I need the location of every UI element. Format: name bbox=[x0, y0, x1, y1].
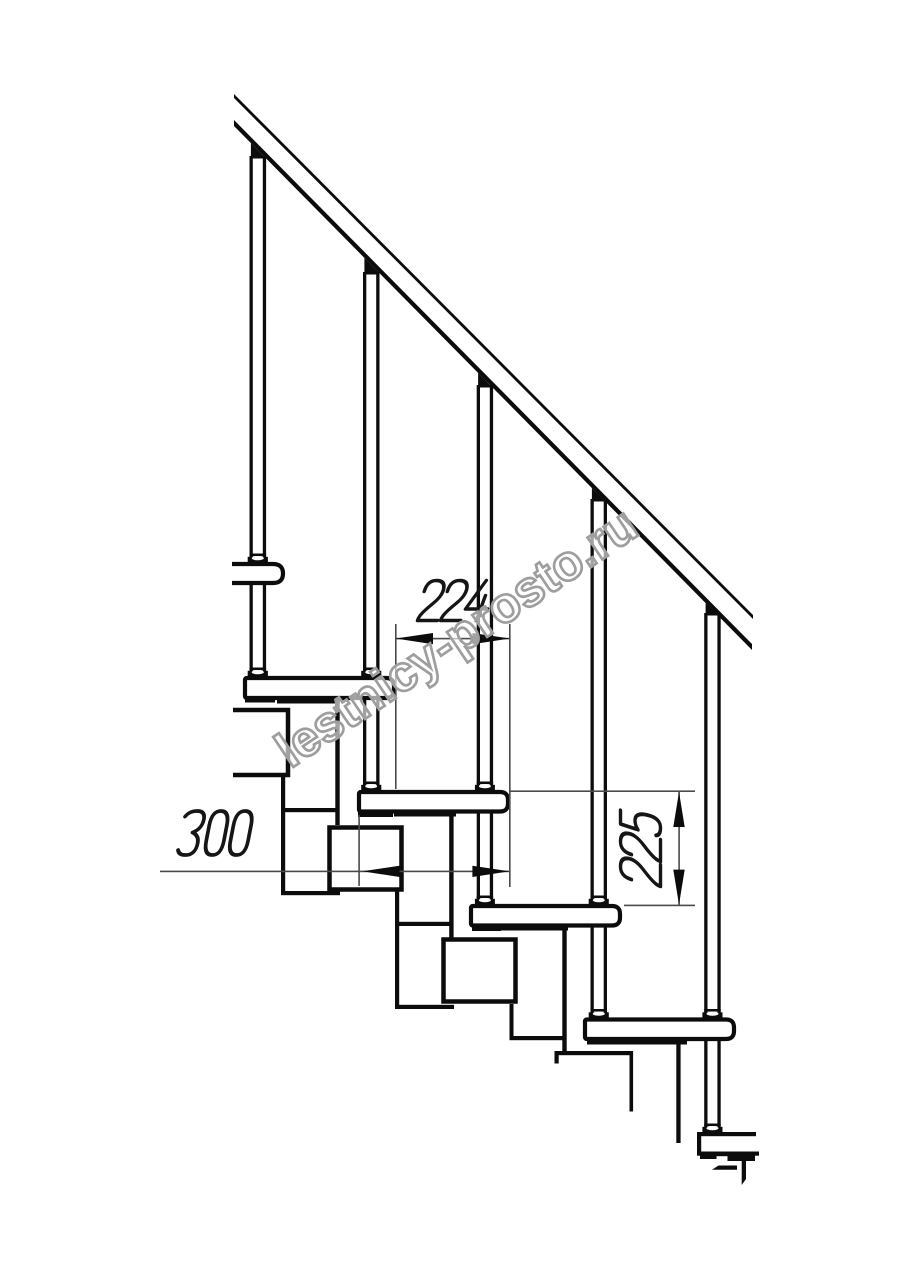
svg-text:lestnicy-prosto.ru: lestnicy-prosto.ru bbox=[265, 496, 647, 778]
